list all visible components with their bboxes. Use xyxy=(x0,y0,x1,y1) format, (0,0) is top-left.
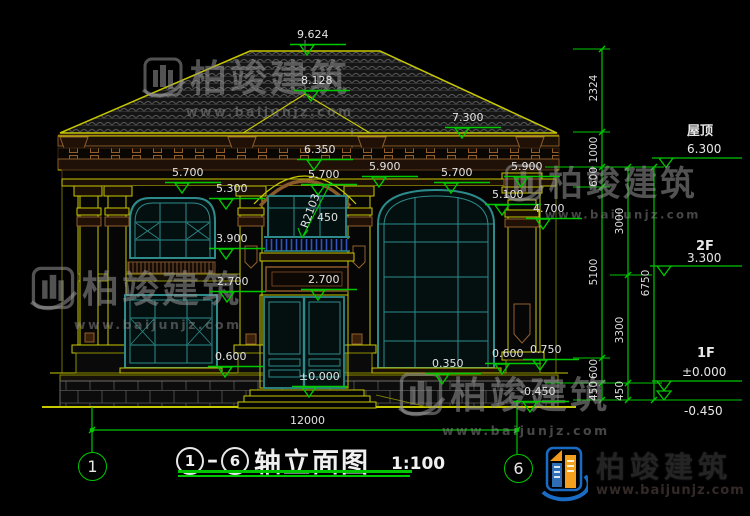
chain-dim-label: 450 xyxy=(588,381,600,401)
chain-dim-label: 2324 xyxy=(588,75,600,102)
level-name: 1F xyxy=(697,346,715,361)
title-underline xyxy=(178,475,410,477)
chain-dim-label: 450 xyxy=(614,381,626,401)
chain-dim-label: 1000 xyxy=(588,137,600,164)
chain-dim-label: 3000 xyxy=(614,208,626,235)
level-name: 屋顶 xyxy=(687,120,713,139)
level-value: -0.450 xyxy=(684,404,723,418)
company-logo: 柏竣建筑 www.baijunjz.com xyxy=(540,446,745,504)
chain-dim-label: 600 xyxy=(588,167,600,187)
level-value: 6.300 xyxy=(687,142,721,156)
level-value: 3.300 xyxy=(687,251,721,265)
chain-dim-label: 6750 xyxy=(640,270,652,297)
level-value: ±0.000 xyxy=(682,365,726,379)
logo-url: www.baijunjz.com xyxy=(596,483,745,498)
company-logo-icon xyxy=(540,446,588,504)
logo-brand: 柏竣建筑 xyxy=(596,452,745,484)
title-underline xyxy=(178,470,412,473)
axis-bubble-6: 6 xyxy=(504,454,533,483)
chain-dim-label: 3300 xyxy=(614,317,626,344)
cad-elevation-drawing: 柏竣建筑 www.baijunjz.com 柏竣建筑 www.baijunjz.… xyxy=(0,0,750,516)
chain-labels: 232410006005100600450300033004506750 xyxy=(0,0,750,516)
chain-dim-label: 600 xyxy=(588,359,600,379)
axis-bubble-1: 1 xyxy=(78,452,107,481)
chain-dim-label: 5100 xyxy=(588,259,600,286)
